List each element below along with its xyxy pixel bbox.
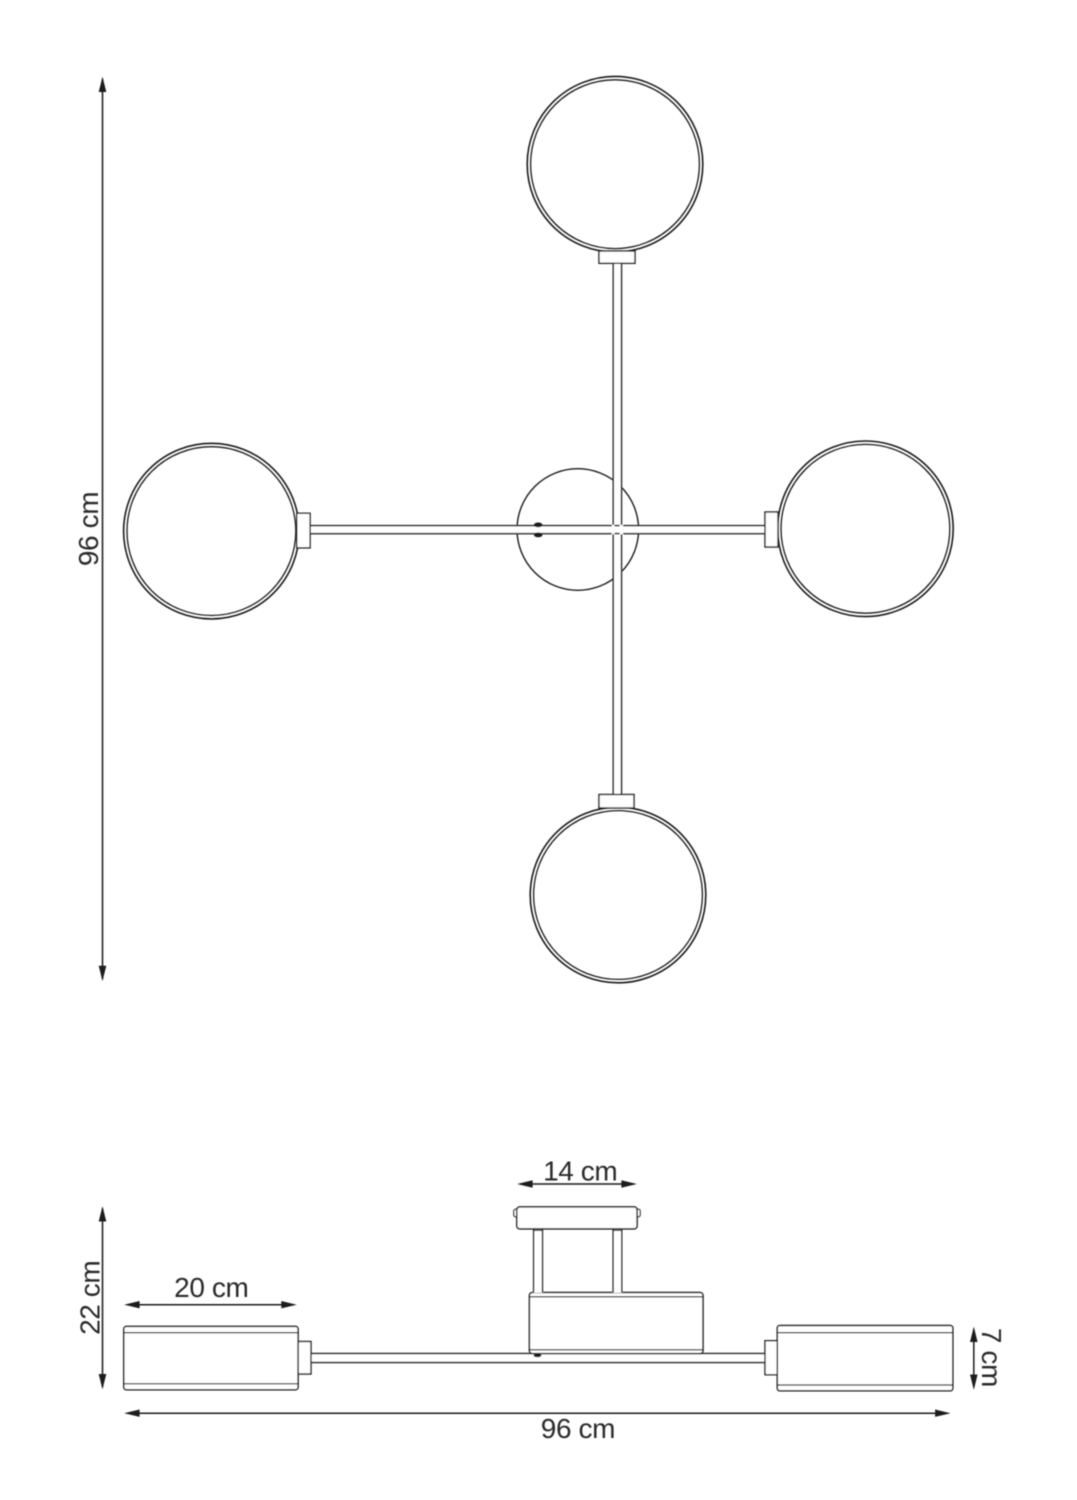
svg-text:22 cm: 22 cm bbox=[75, 1261, 106, 1335]
svg-text:96 cm: 96 cm bbox=[541, 1413, 615, 1444]
svg-text:96 cm: 96 cm bbox=[73, 492, 104, 566]
svg-text:14 cm: 14 cm bbox=[543, 1155, 617, 1186]
svg-text:7 cm: 7 cm bbox=[976, 1328, 1007, 1387]
svg-text:20 cm: 20 cm bbox=[174, 1272, 248, 1303]
